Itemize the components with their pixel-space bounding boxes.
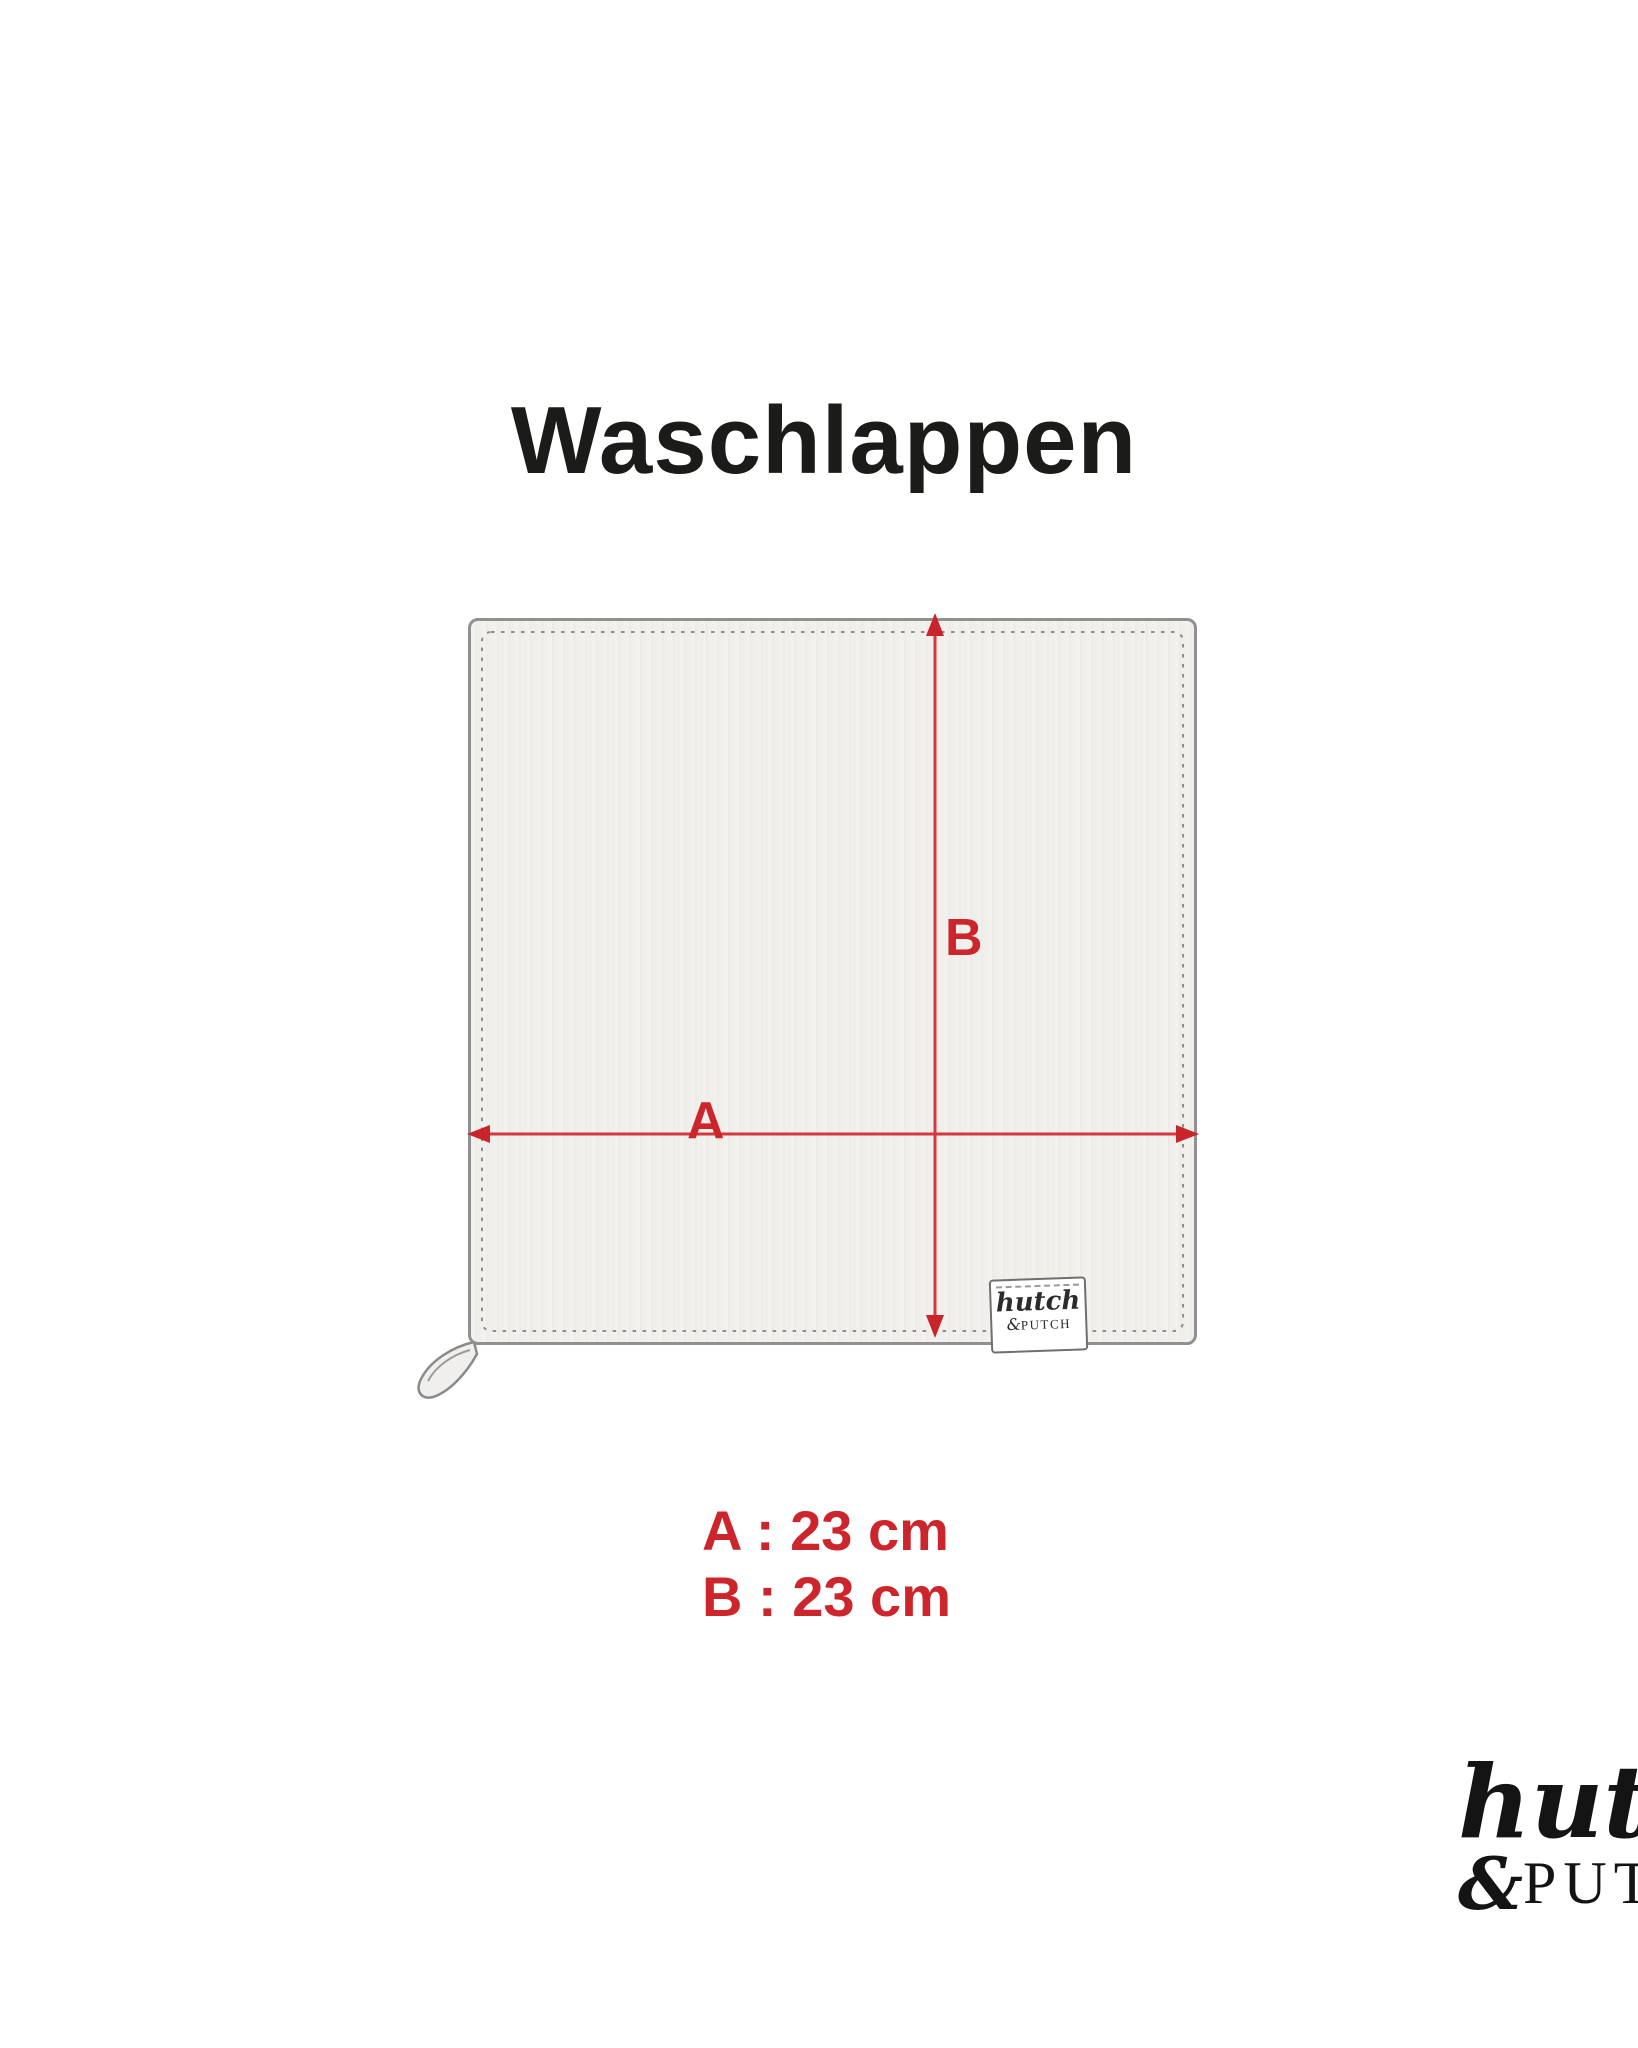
measurement-b: B : 23 cm bbox=[702, 1564, 951, 1630]
tag-ampersand: & bbox=[1006, 1315, 1021, 1334]
dimension-label-a: A bbox=[687, 1095, 725, 1147]
dimension-arrow-b-head-bottom bbox=[926, 1315, 944, 1338]
brand-logo-script: hutch bbox=[1458, 1752, 1638, 1852]
brand-logo-caps-row: &PUTCH bbox=[1458, 1848, 1638, 1934]
tag-script-text: hutch bbox=[991, 1287, 1085, 1316]
measurement-a: A : 23 cm bbox=[702, 1498, 951, 1564]
tag-caps-text: PUTCH bbox=[1021, 1316, 1072, 1333]
dimension-arrow-a-head-right bbox=[1176, 1125, 1199, 1143]
measurement-values: A : 23 cm B : 23 cm bbox=[702, 1498, 951, 1630]
brand-tag: hutch &PUTCH bbox=[989, 1276, 1089, 1353]
infographic-page: { "title": "Waschlappen", "diagram": { "… bbox=[0, 0, 1638, 2048]
stitch-seam-line bbox=[482, 632, 1183, 1331]
brand-logo: hutch &PUTCH bbox=[1458, 1752, 1638, 1934]
dimension-label-b: B bbox=[945, 912, 983, 964]
dimension-arrow-b-head-top bbox=[926, 613, 944, 636]
tag-caps-row: &PUTCH bbox=[992, 1315, 1085, 1333]
brand-logo-ampersand: & bbox=[1458, 1841, 1523, 1926]
diagram-overlay bbox=[0, 0, 1638, 2048]
brand-logo-caps: PUTCH bbox=[1523, 1850, 1638, 1916]
dimension-arrow-a-head-left bbox=[467, 1125, 490, 1143]
